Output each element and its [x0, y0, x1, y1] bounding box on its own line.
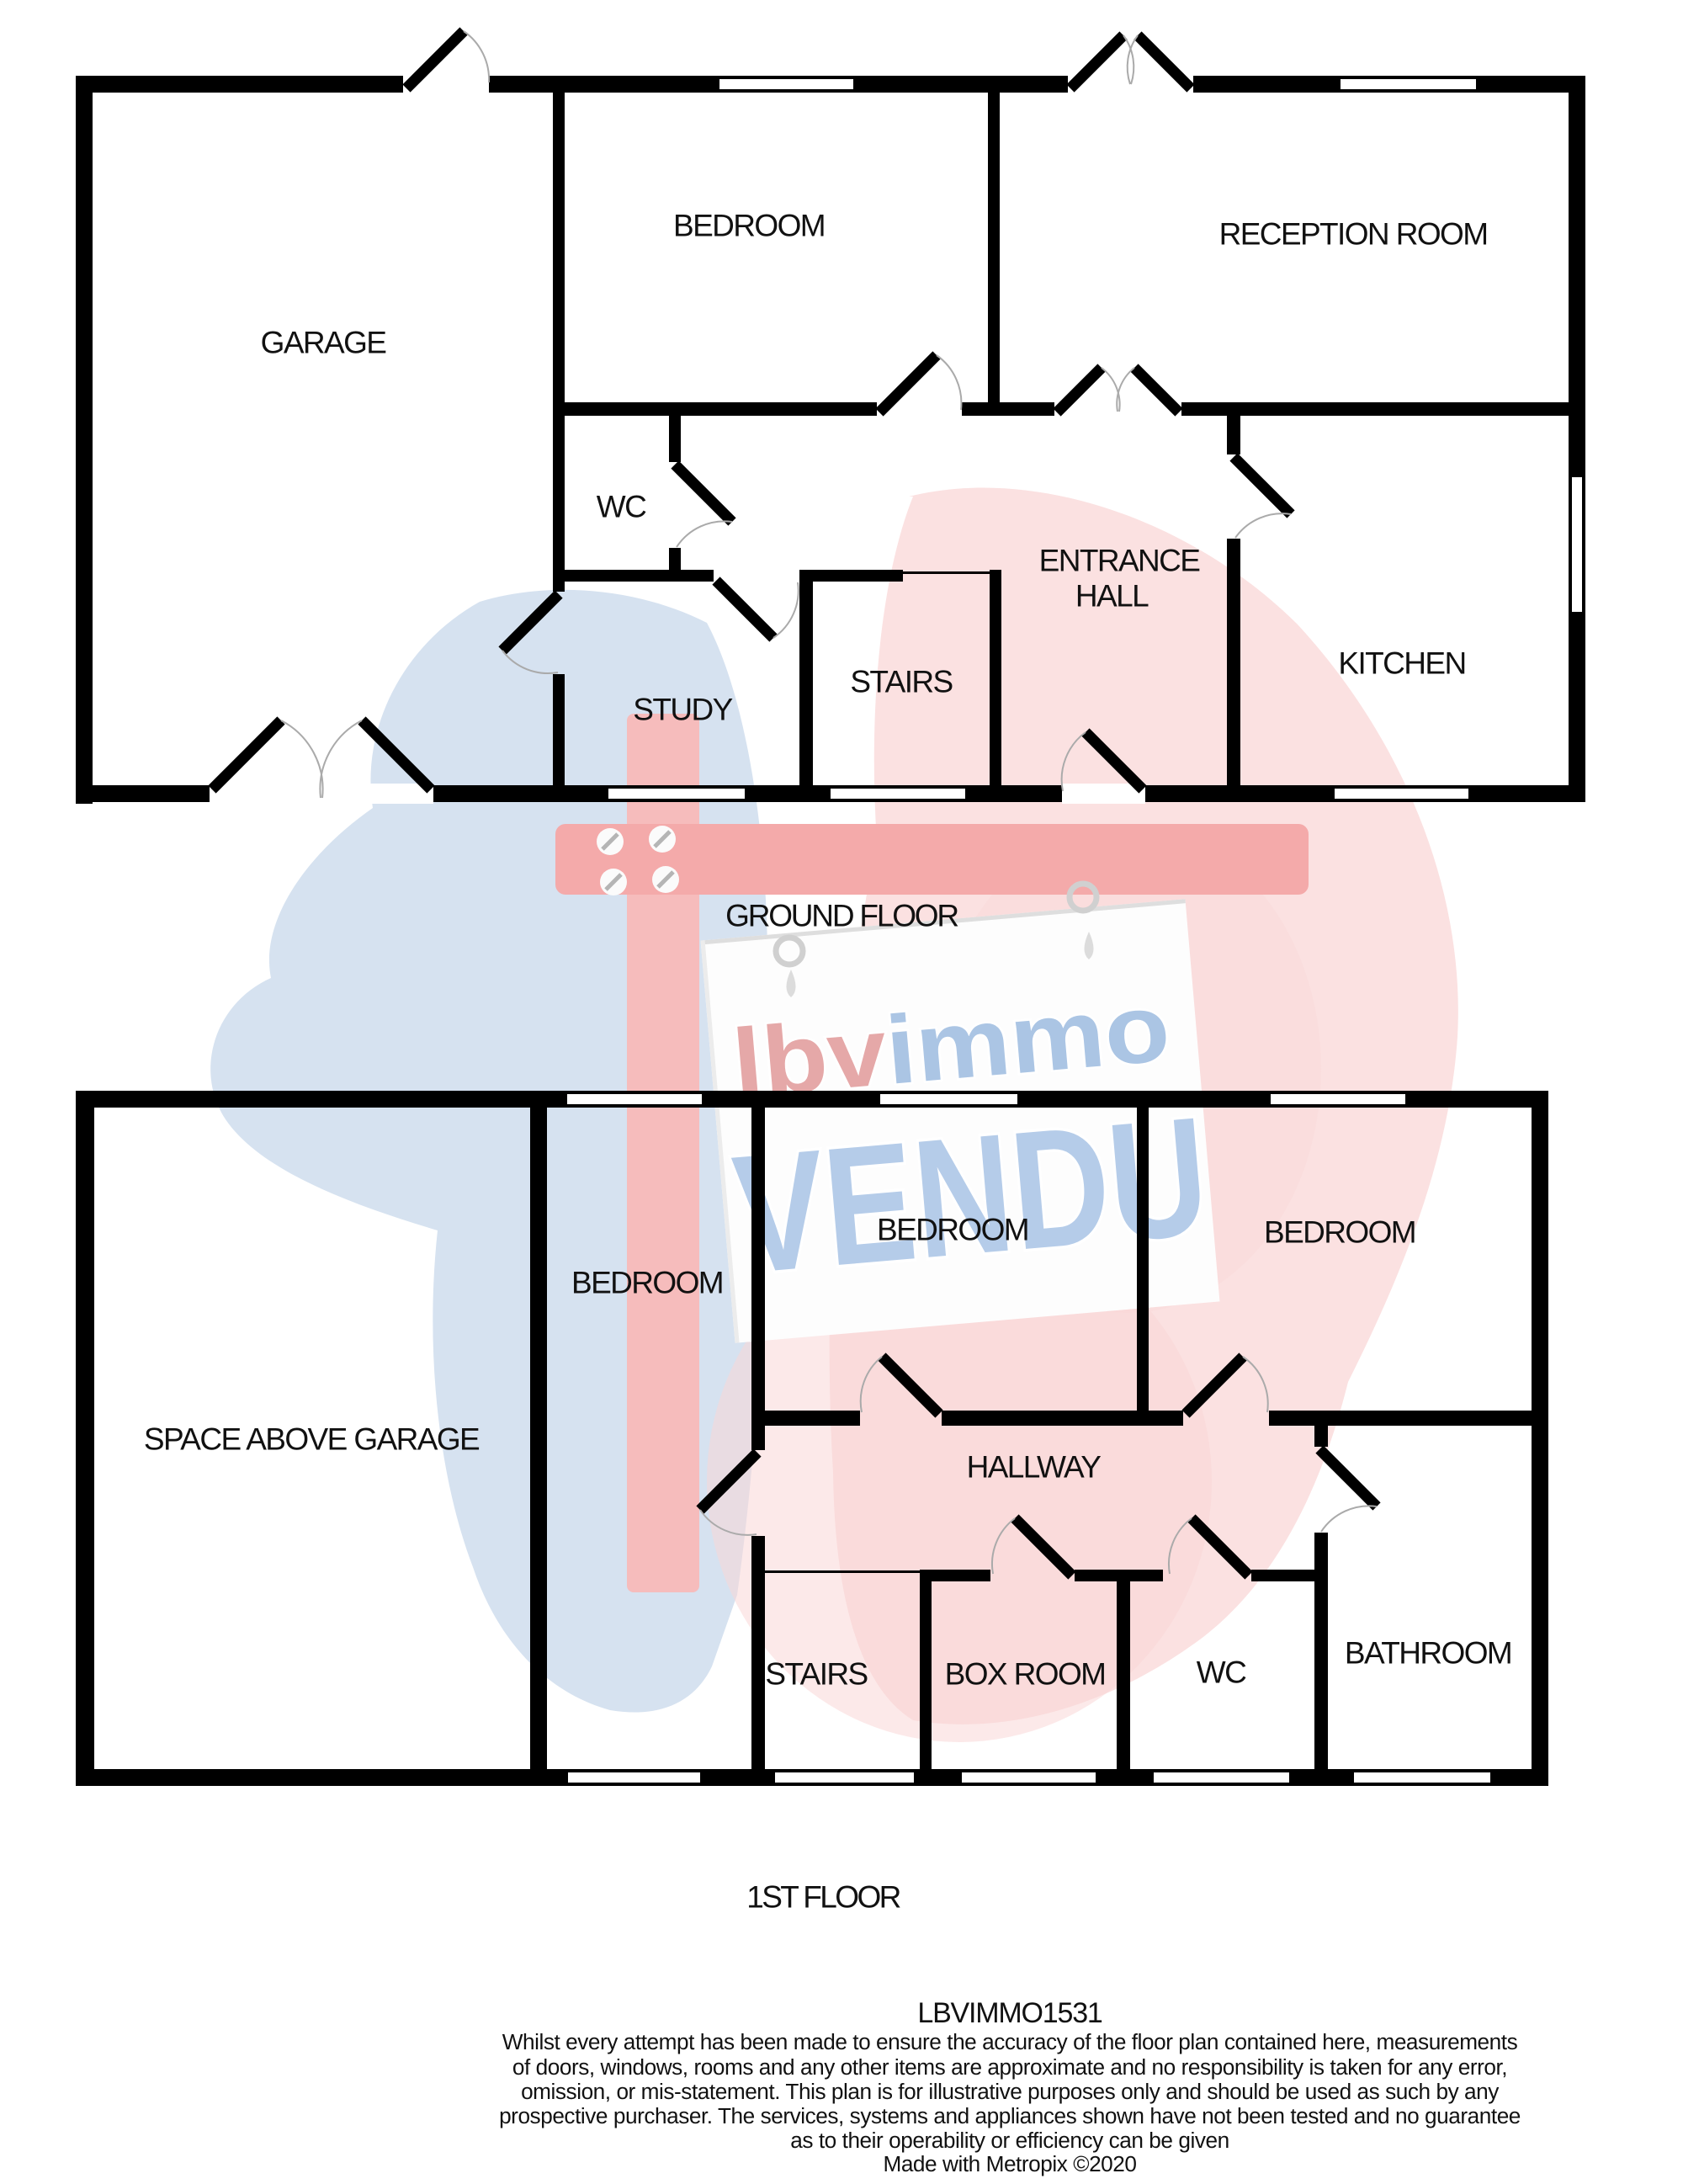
svg-text:SPACE ABOVE GARAGE: SPACE ABOVE GARAGE — [144, 1422, 480, 1457]
svg-text:Whilst every attempt has been: Whilst every attempt has been made to en… — [502, 2029, 1518, 2054]
svg-text:BEDROOM: BEDROOM — [571, 1266, 723, 1300]
svg-text:WC: WC — [597, 490, 646, 524]
svg-text:BOX ROOM: BOX ROOM — [945, 1657, 1106, 1692]
svg-text:KITCHEN: KITCHEN — [1338, 646, 1465, 681]
svg-text:of doors, windows, rooms and a: of doors, windows, rooms and any other i… — [512, 2054, 1507, 2080]
svg-text:Made with Metropix ©2020: Made with Metropix ©2020 — [883, 2151, 1136, 2176]
svg-text:STAIRS: STAIRS — [765, 1657, 867, 1692]
svg-text:STUDY: STUDY — [633, 693, 732, 727]
svg-text:GROUND FLOOR: GROUND FLOOR — [725, 899, 958, 933]
svg-text:BATHROOM: BATHROOM — [1345, 1636, 1511, 1671]
svg-text:HALLWAY: HALLWAY — [967, 1450, 1102, 1485]
svg-text:as to their operability or eff: as to their operability or efficiency ca… — [790, 2128, 1229, 2153]
svg-text:LBVIMMO1531: LBVIMMO1531 — [917, 1997, 1102, 2029]
svg-text:RECEPTION ROOM: RECEPTION ROOM — [1219, 217, 1488, 252]
svg-text:BEDROOM: BEDROOM — [1264, 1215, 1415, 1250]
svg-text:1ST FLOOR: 1ST FLOOR — [746, 1880, 900, 1915]
svg-text:omission, or mis-statement. Th: omission, or mis-statement. This plan is… — [521, 2079, 1500, 2104]
svg-text:STAIRS: STAIRS — [850, 665, 952, 699]
svg-text:GARAGE: GARAGE — [261, 326, 387, 360]
svg-text:BEDROOM: BEDROOM — [877, 1213, 1028, 1247]
svg-text:BEDROOM: BEDROOM — [673, 209, 825, 243]
svg-text:ENTRANCE: ENTRANCE — [1039, 544, 1201, 578]
svg-text:prospective purchaser. The ser: prospective purchaser. The services, sys… — [499, 2103, 1521, 2128]
svg-text:HALL: HALL — [1075, 579, 1149, 614]
svg-text:WC: WC — [1197, 1655, 1246, 1690]
